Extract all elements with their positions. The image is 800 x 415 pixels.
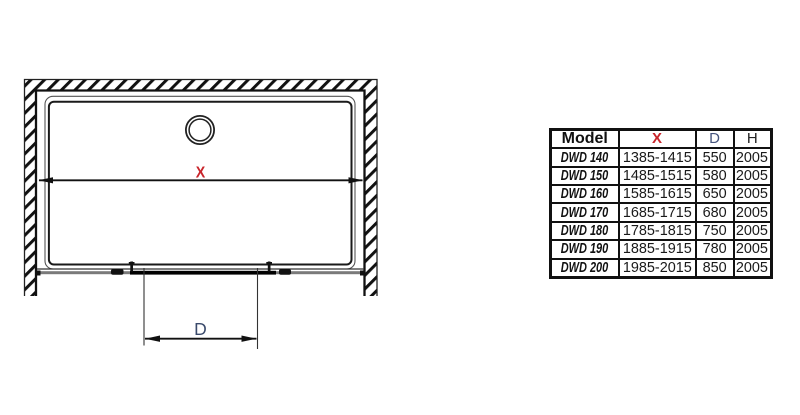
svg-text:D: D [194, 319, 207, 339]
svg-text:X: X [196, 164, 206, 181]
